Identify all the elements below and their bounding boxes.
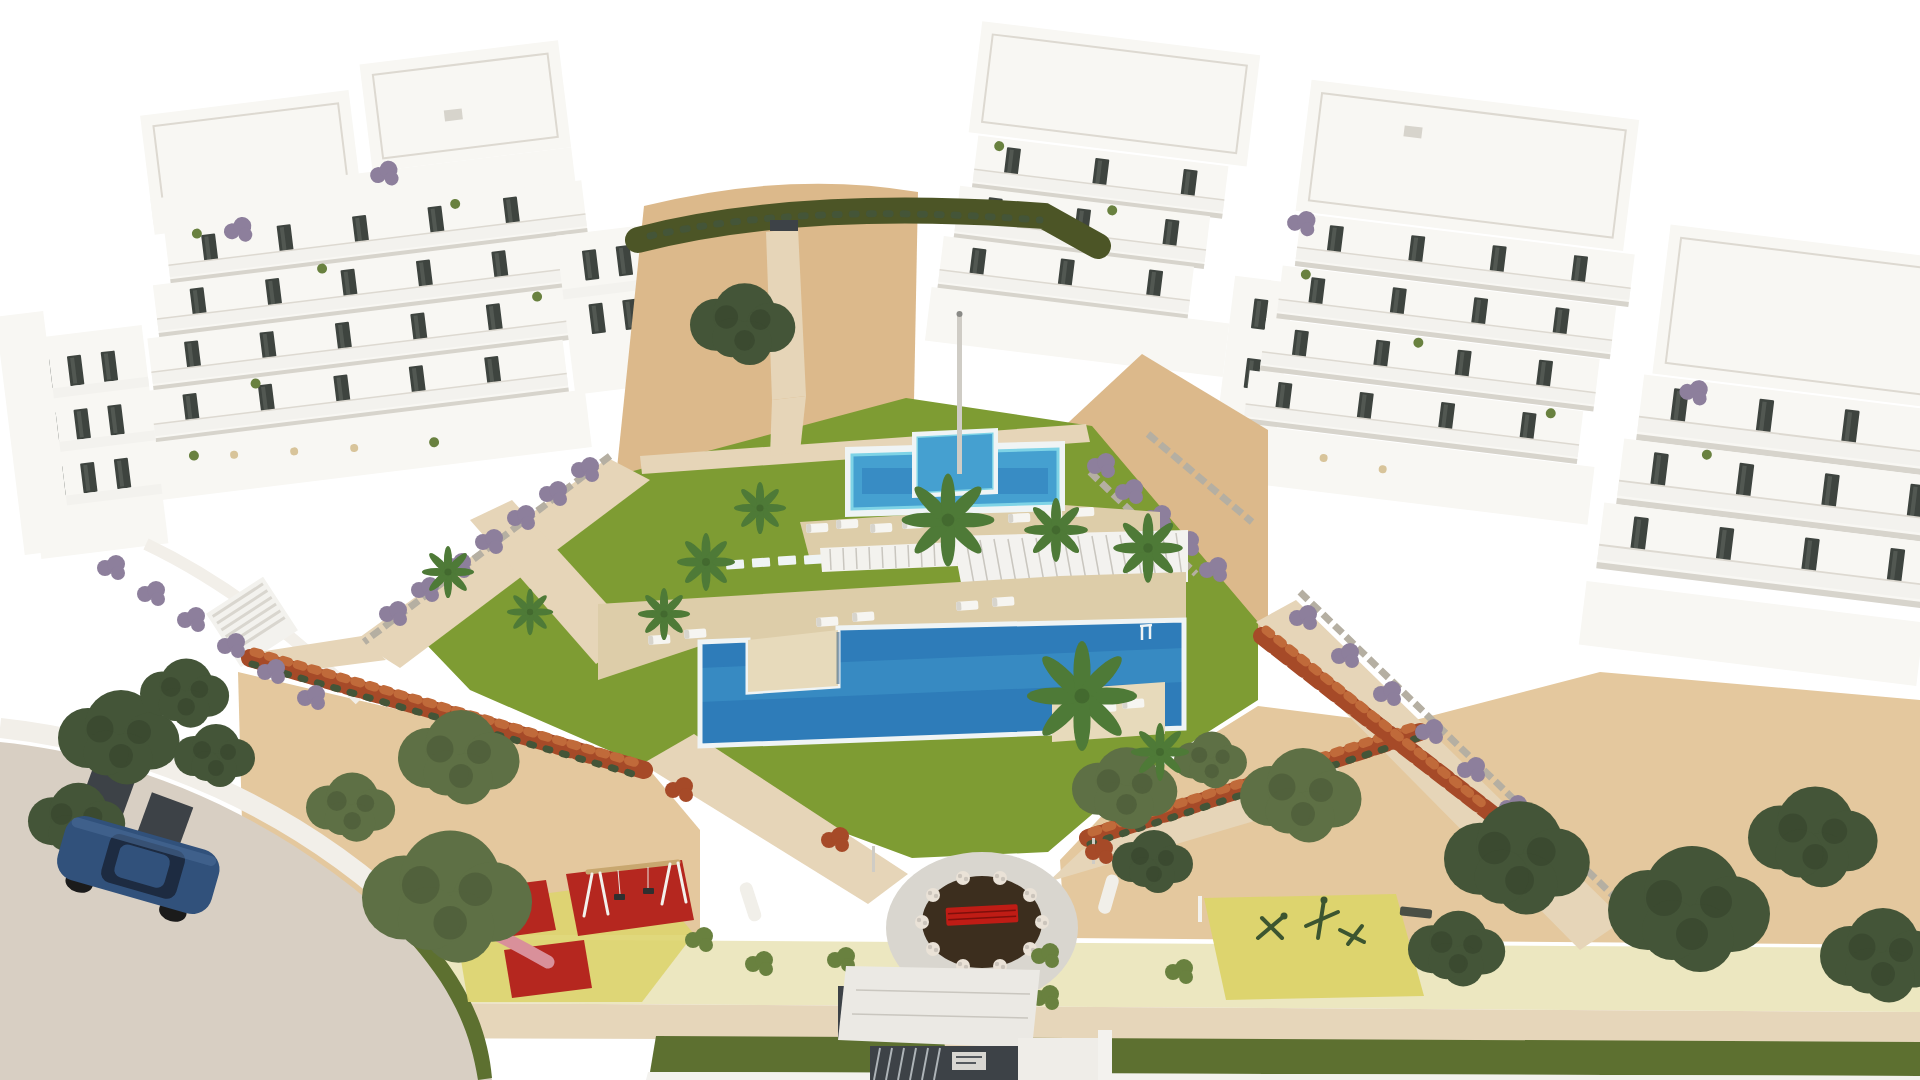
pole-top (957, 311, 963, 317)
entrance-canopy (838, 966, 1040, 1048)
gate-column (1098, 1030, 1112, 1080)
light-pole (872, 846, 875, 872)
render-canvas: New-build apartment complex - aerial 3D … (0, 0, 1920, 1080)
spa-pool-water (918, 434, 992, 492)
exercise-mat (1204, 894, 1424, 1000)
light-pole (1198, 896, 1202, 922)
gate-sign (952, 1052, 986, 1070)
rear-gate (770, 220, 798, 231)
boundary-hedge (650, 1036, 1920, 1076)
red-bench (946, 904, 1019, 926)
architectural-render: New-build apartment complex - aerial 3D … (0, 0, 1920, 1080)
flag-pole (957, 316, 962, 474)
gate-pillar (1018, 1038, 1104, 1080)
exercise-area (1198, 894, 1432, 1000)
deck-peninsula (748, 630, 838, 692)
